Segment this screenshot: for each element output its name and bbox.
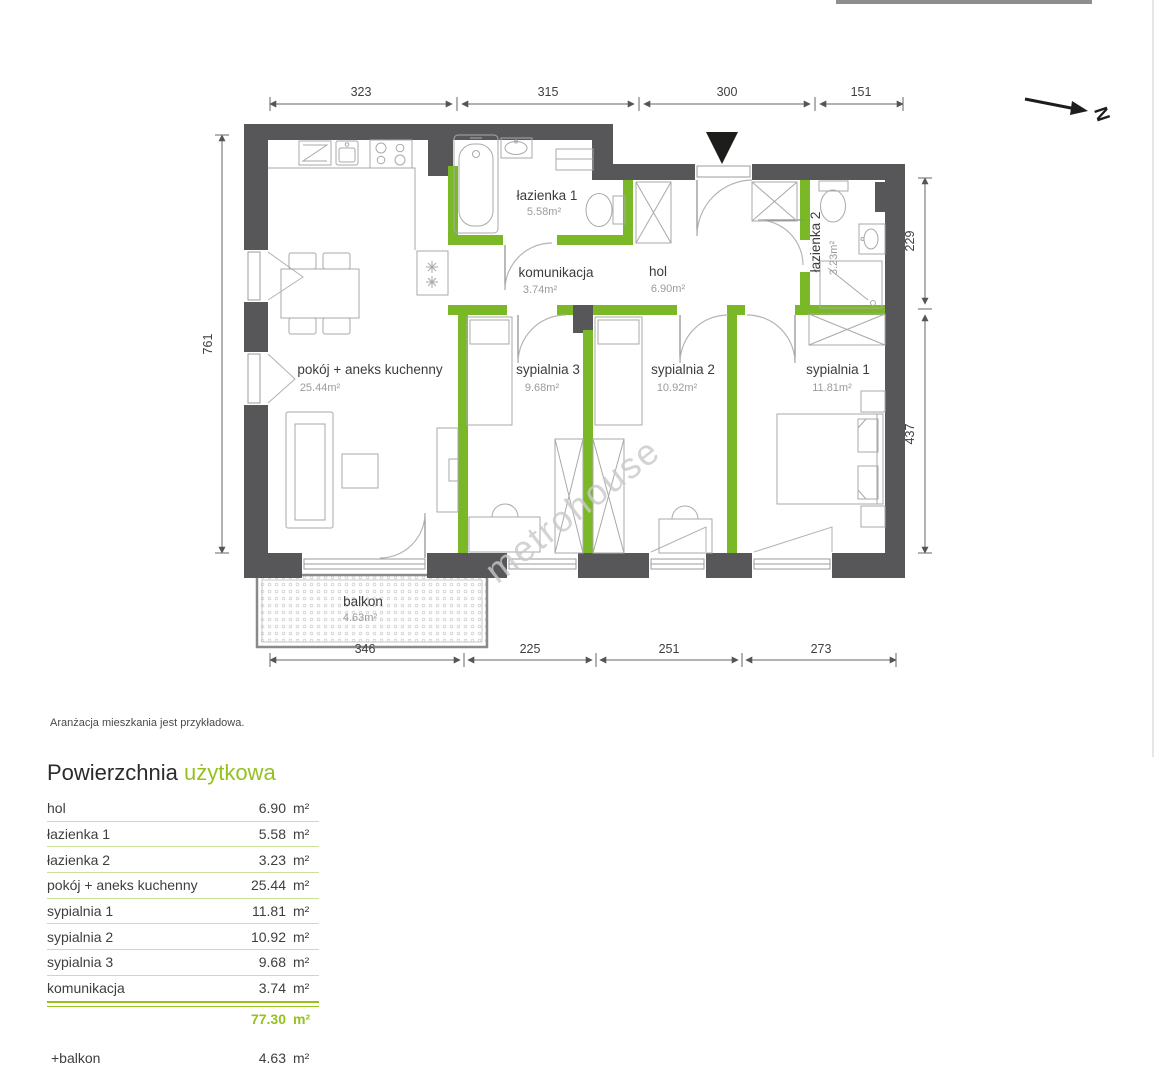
- dim-bottom-2: 225: [520, 642, 541, 656]
- dim-top-4: 151: [851, 85, 872, 99]
- bathtub-icon: [454, 135, 498, 233]
- svg-text:10.92m²: 10.92m²: [657, 382, 698, 394]
- desk-syp2-icon: [659, 506, 712, 553]
- table-title: Powierzchnia użytkowa: [47, 760, 319, 786]
- dim-top-2: 315: [538, 85, 559, 99]
- room-label-pokoj: pokój + aneks kuchenny 25.44m²: [297, 362, 442, 394]
- dim-top-3: 300: [717, 85, 738, 99]
- svg-text:sypialnia 1: sypialnia 1: [806, 362, 870, 377]
- page-top-bar: [836, 0, 1092, 4]
- disclaimer-note: Aranżacja mieszkania jest przykładowa.: [50, 717, 244, 729]
- room-label-lazienka2: łazienka 2 3.23m²: [808, 212, 840, 276]
- dim-bottom-3: 251: [659, 642, 680, 656]
- wardrobe-syp1-icon: [809, 314, 885, 345]
- table-row: pokój + aneks kuchenny 25.44 m²: [47, 873, 319, 899]
- svg-text:łazienka 1: łazienka 1: [517, 188, 578, 203]
- svg-text:hol: hol: [649, 264, 667, 279]
- stove-icon: [370, 140, 412, 168]
- toilet2-icon: [819, 181, 848, 222]
- table-row: łazienka 1 5.58 m²: [47, 822, 319, 848]
- room-label-sypialnia3: sypialnia 3 9.68m²: [516, 362, 580, 394]
- double-bed-icon: [777, 391, 885, 527]
- svg-text:6.90m²: 6.90m²: [651, 283, 686, 295]
- dim-right-2: 437: [903, 424, 917, 445]
- svg-text:3.23m²: 3.23m²: [828, 241, 840, 276]
- kitchen-counter-icon: [268, 168, 415, 250]
- svg-text:komunikacja: komunikacja: [518, 265, 594, 280]
- room-label-sypialnia2: sypialnia 2 10.92m²: [651, 362, 715, 394]
- desk-pokoj-icon: [437, 428, 458, 512]
- fridge-icon: [299, 141, 331, 165]
- table-row: sypialnia 3 9.68 m²: [47, 950, 319, 976]
- dim-left-1: 761: [201, 334, 215, 355]
- table-row: sypialnia 1 11.81 m²: [47, 899, 319, 925]
- table-row: sypialnia 2 10.92 m²: [47, 924, 319, 950]
- bed-syp2-icon: [595, 317, 642, 425]
- svg-text:9.68m²: 9.68m²: [525, 382, 560, 394]
- total-area-row: 77.30 m²: [47, 1007, 319, 1032]
- coffee-table-icon: [342, 454, 378, 488]
- washing-machine-icon: [417, 251, 448, 295]
- dim-top-1: 323: [351, 85, 372, 99]
- north-arrow: N: [1025, 99, 1113, 124]
- svg-text:balkon: balkon: [343, 594, 383, 609]
- svg-text:3.74m²: 3.74m²: [523, 284, 558, 296]
- dim-right-1: 229: [903, 231, 917, 252]
- room-label-lazienka1: łazienka 1 5.58m²: [517, 188, 578, 218]
- svg-text:sypialnia 2: sypialnia 2: [651, 362, 715, 377]
- svg-text:25.44m²: 25.44m²: [300, 382, 341, 394]
- floorplan-drawing: łazienka 1 5.58m² komunikacja 3.74m² hol…: [0, 0, 1173, 760]
- toilet1-icon: [586, 194, 625, 227]
- north-arrowhead-icon: [1070, 101, 1088, 115]
- balcony-area-row: +balkon 4.63 m²: [47, 1046, 319, 1071]
- svg-text:sypialnia 3: sypialnia 3: [516, 362, 580, 377]
- svg-text:4.63m²: 4.63m²: [343, 612, 378, 624]
- table-row: łazienka 2 3.23 m²: [47, 847, 319, 873]
- sofa-icon: [286, 412, 333, 528]
- dim-bottom-1: 346: [355, 642, 376, 656]
- bath2-sink-icon: [859, 224, 885, 254]
- bed-syp3-icon: [467, 317, 512, 425]
- room-label-komunikacja: komunikacja 3.74m²: [518, 265, 594, 296]
- svg-text:5.58m²: 5.58m²: [527, 206, 562, 218]
- kitchen-sink-icon: [336, 141, 358, 165]
- balcony: [257, 575, 487, 647]
- wardrobe-hol-right-icon: [752, 182, 797, 221]
- floorplan-page: łazienka 1 5.58m² komunikacja 3.74m² hol…: [0, 0, 1173, 1080]
- svg-text:N: N: [1089, 105, 1113, 125]
- table-row: hol 6.90 m²: [47, 796, 319, 822]
- dining-table-icon: [281, 253, 359, 334]
- room-label-sypialnia1: sypialnia 1 11.81m²: [806, 362, 870, 394]
- room-label-hol: hol 6.90m²: [649, 264, 685, 295]
- wardrobe-hol-left-icon: [636, 182, 671, 243]
- page-edge-divider: [1152, 0, 1154, 757]
- dim-bottom-4: 273: [811, 642, 832, 656]
- svg-text:pokój + aneks kuchenny: pokój + aneks kuchenny: [297, 362, 442, 377]
- area-summary-table: Powierzchnia użytkowa hol 6.90 m² łazien…: [47, 760, 319, 1071]
- svg-text:11.81m²: 11.81m²: [812, 382, 852, 394]
- svg-text:łazienka 2: łazienka 2: [808, 212, 823, 273]
- table-row: komunikacja 3.74 m²: [47, 976, 319, 1001]
- bath1-cabinet-icon: [556, 149, 593, 170]
- entrance-marker-icon: [706, 132, 738, 164]
- bath1-sink-icon: [501, 138, 532, 158]
